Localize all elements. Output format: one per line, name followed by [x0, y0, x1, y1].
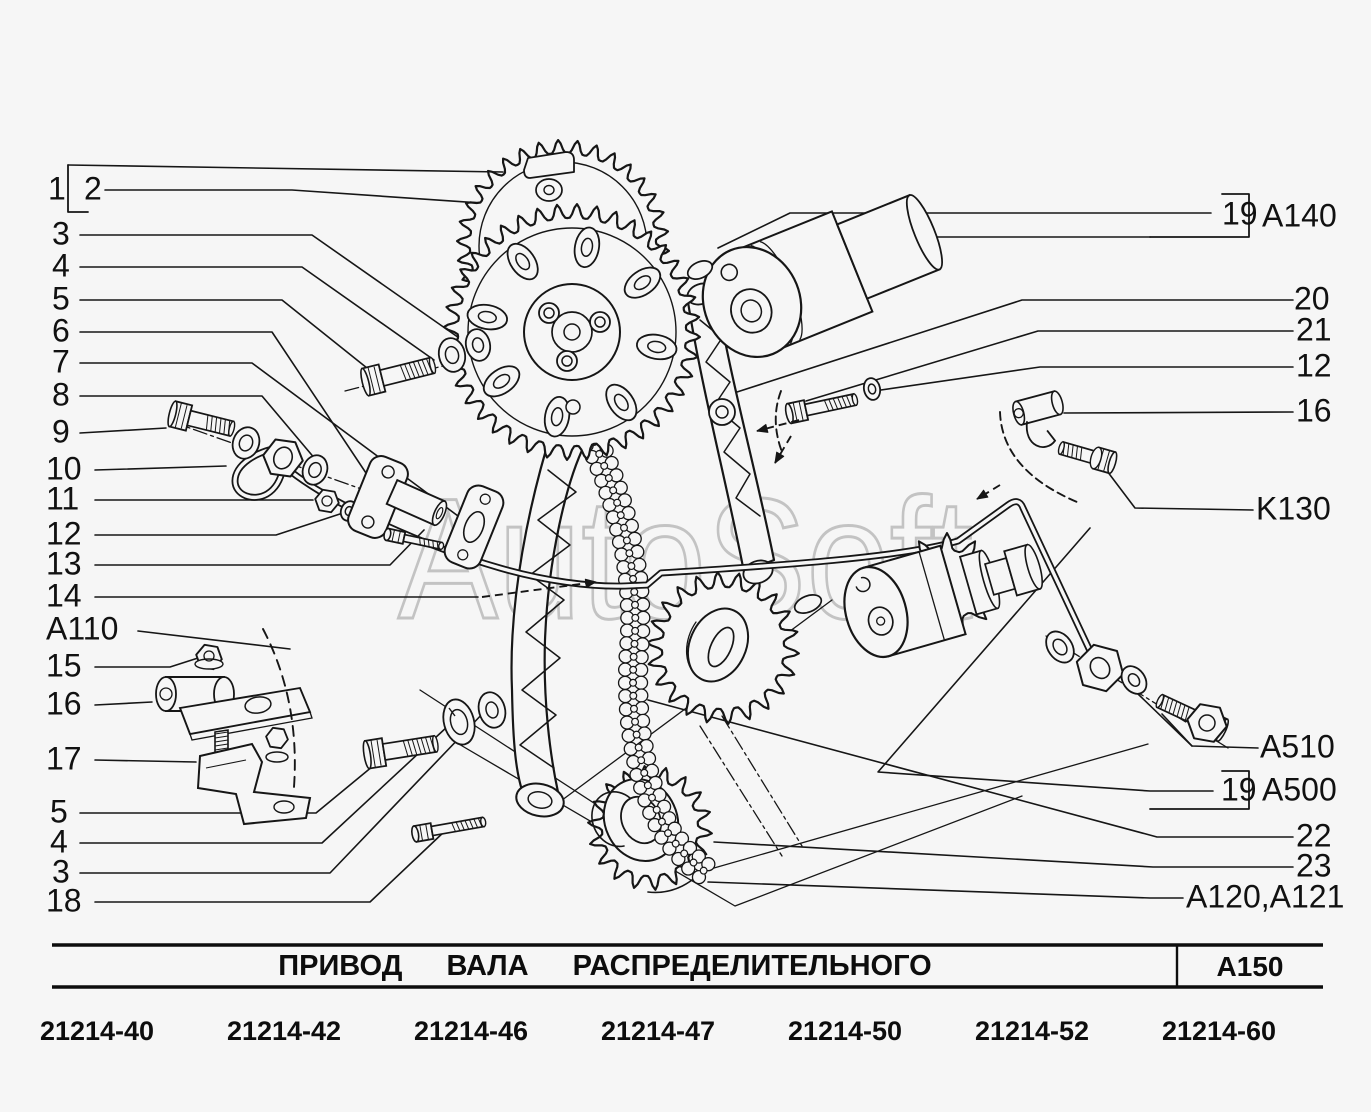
callout-left-3: 3 — [52, 218, 70, 250]
dash-arrow-head — [977, 490, 988, 499]
leader-line — [80, 267, 434, 360]
model-code-21214-40: 21214-40 — [2, 1016, 192, 1047]
chain-pin — [638, 757, 645, 764]
chain-pin — [623, 537, 630, 544]
banjo-bolt-9 — [166, 400, 237, 441]
washer-3-lower — [475, 689, 509, 731]
callout-left-A110: A110 — [46, 613, 118, 645]
callout-left-16: 16 — [46, 688, 82, 720]
leader-line — [714, 842, 1293, 867]
callout-left-1: 1 — [48, 173, 66, 205]
a510-bolt-head-bore — [1199, 715, 1215, 731]
chain-pin — [644, 782, 651, 789]
callout-right-23: 23 — [1296, 850, 1332, 882]
callout-left-4: 4 — [52, 250, 70, 282]
pipe-clamp-16 — [156, 677, 312, 740]
callout-right-12: 12 — [1296, 350, 1332, 382]
dashed-arc — [776, 391, 782, 452]
chain-pin — [672, 840, 679, 847]
callout-right-20: 20 — [1294, 283, 1330, 315]
chain-pin — [605, 475, 612, 482]
chain-pin — [635, 744, 642, 751]
chain-pin — [617, 512, 624, 519]
hub-bolt-hole — [539, 303, 559, 323]
chain-pin — [665, 830, 672, 837]
dash-arrow-head — [757, 424, 768, 432]
hub-center-hole — [564, 324, 580, 340]
chain-pin — [641, 769, 648, 776]
leader-line — [80, 332, 368, 476]
catalog-page: AutoSoft 1234567891011121314A11015161754… — [0, 0, 1371, 1112]
lock-washer-4 — [439, 696, 480, 748]
model-code-21214-60: 21214-60 — [1124, 1016, 1314, 1047]
chain-pin — [630, 692, 637, 699]
stud-18 — [411, 814, 487, 843]
callout-right-21: 21 — [1296, 314, 1332, 346]
leader-line — [95, 760, 196, 762]
callout-left-11: 11 — [46, 483, 79, 515]
bolt-shank — [187, 411, 233, 436]
pipe-union-left — [263, 440, 303, 477]
a510-washer — [1040, 626, 1079, 668]
chain-pin — [626, 550, 633, 557]
chain-pin — [630, 576, 637, 583]
chain-pin — [621, 524, 628, 531]
chain-pin — [659, 818, 666, 825]
chain-pin — [630, 653, 637, 660]
leader-line — [874, 367, 1293, 391]
callout-left-14: 14 — [46, 580, 82, 612]
leader-line — [95, 512, 346, 535]
callout-right-A140: A140 — [1262, 200, 1337, 232]
dash-arrow-head — [775, 452, 784, 463]
leader-line — [105, 190, 524, 206]
bracket-washer — [266, 752, 288, 762]
callout-left-18: 18 — [46, 885, 82, 917]
chain-pin — [690, 859, 697, 866]
model-code-21214-46: 21214-46 — [376, 1016, 566, 1047]
hub-bolt-hole — [557, 351, 577, 371]
leader-line — [80, 428, 166, 433]
chain-guide-right-pivot — [709, 399, 735, 425]
chain-pin — [614, 499, 621, 506]
chain-pin — [649, 794, 656, 801]
bolt-shank — [805, 394, 856, 416]
chain-pin — [681, 850, 688, 857]
leader-line — [95, 830, 446, 902]
callout-right-19: 19 — [1221, 774, 1257, 806]
sprocket-key-boss — [536, 179, 562, 201]
chain-pin — [630, 666, 637, 673]
tensioner-bolt — [784, 389, 859, 424]
tensioner-bolt-washer — [862, 377, 882, 402]
chain-pin — [632, 614, 639, 621]
leader-line — [95, 702, 152, 705]
k130-bolt — [1056, 437, 1118, 474]
chain-pin — [630, 679, 637, 686]
callout-left-17: 17 — [46, 743, 82, 775]
chain-pin — [653, 806, 660, 813]
leader-line — [80, 235, 462, 340]
sprocket-small-hole — [566, 400, 580, 414]
callout-right-A500: A500 — [1262, 774, 1337, 806]
leader-line — [80, 300, 372, 372]
callout-left-6: 6 — [52, 315, 70, 347]
bracket-body — [198, 744, 310, 824]
chain-pin — [631, 705, 638, 712]
bolt-5-lower — [362, 730, 440, 769]
clamp16-face — [156, 677, 176, 711]
bolt-5-upper — [359, 351, 438, 396]
chain-pin — [700, 867, 707, 874]
callout-left-2: 2 — [84, 173, 102, 205]
callout-left-15: 15 — [46, 650, 82, 682]
chain-pin — [632, 718, 639, 725]
callout-right-A510: A510 — [1260, 731, 1335, 763]
leader-line — [708, 882, 1183, 898]
chain-pin — [631, 640, 638, 647]
chain-pin — [633, 731, 640, 738]
callout-right-A120,A121: A120,A121 — [1186, 881, 1344, 913]
chain-pin — [632, 627, 639, 634]
hub-bolt-hole — [590, 312, 610, 332]
callout-left-8: 8 — [52, 379, 70, 411]
bracket-nut — [266, 728, 288, 748]
leader-line — [1101, 463, 1253, 510]
bolt-tip — [438, 542, 444, 550]
chain-pin — [601, 463, 608, 470]
model-code-21214-47: 21214-47 — [563, 1016, 753, 1047]
axis-line — [722, 716, 802, 846]
model-code-21214-52: 21214-52 — [937, 1016, 1127, 1047]
leader-line — [95, 658, 198, 667]
callout-right-K130: K130 — [1256, 493, 1331, 525]
chain-pin — [631, 588, 638, 595]
chain-pin — [610, 487, 617, 494]
table-title: ПРИВОД ВАЛА РАСПРЕДЕЛИТЕЛЬНОГО — [255, 950, 955, 983]
callout-left-13: 13 — [46, 548, 82, 580]
dashed-arc — [1000, 412, 1077, 502]
leader-line — [1064, 412, 1293, 413]
bracket-hole — [274, 801, 294, 813]
leader-line — [95, 466, 226, 470]
chain-pin — [632, 601, 639, 608]
mount-bracket-17 — [198, 730, 310, 824]
model-code-21214-50: 21214-50 — [750, 1016, 940, 1047]
leader-line — [68, 165, 503, 172]
axis-line — [700, 726, 782, 856]
section-code: A150 — [1180, 951, 1320, 983]
callout-left-7: 7 — [52, 346, 70, 378]
callout-right-19: 19 — [1222, 198, 1258, 230]
diagram-canvas: AutoSoft — [0, 0, 1371, 1112]
callout-right-16: 16 — [1296, 395, 1332, 427]
pipe-union-nut — [1077, 645, 1123, 691]
callout-left-9: 9 — [52, 416, 70, 448]
chain-tensioner — [687, 177, 955, 372]
chain-pin — [628, 563, 635, 570]
callout-left-5: 5 — [52, 283, 70, 315]
model-code-21214-42: 21214-42 — [189, 1016, 379, 1047]
